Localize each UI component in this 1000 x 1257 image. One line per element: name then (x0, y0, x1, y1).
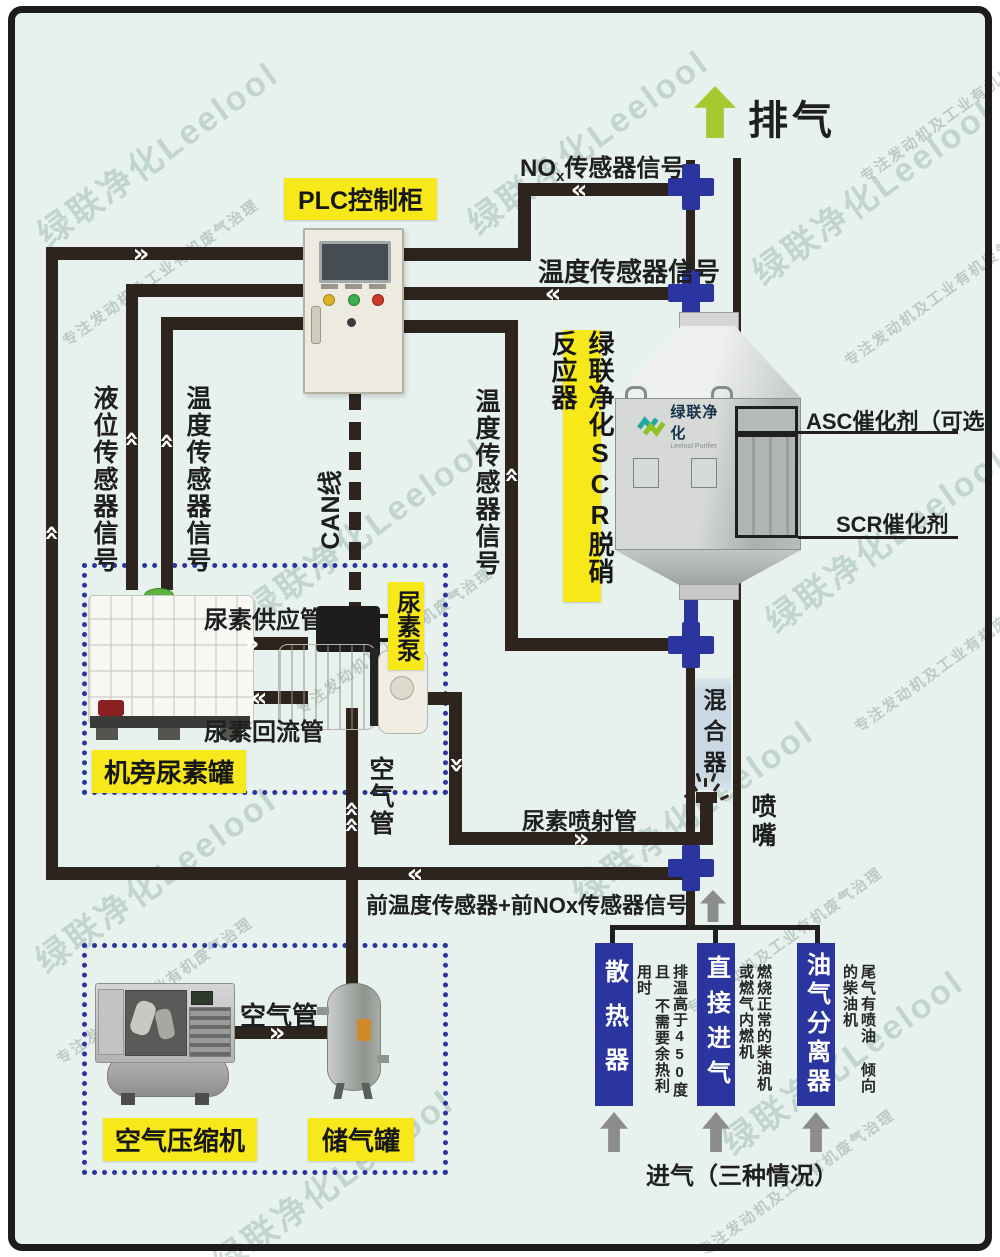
reactor-label: 绿联净化SCR脱硝反应器 (563, 330, 601, 602)
air-tank-label-patch (357, 1019, 371, 1041)
urea-inject-pipe (700, 800, 713, 845)
compressor-foot (195, 1093, 209, 1105)
air-tank-label: 储气罐 (308, 1118, 414, 1161)
mid-temp-signal-line (400, 320, 512, 333)
air-tank-inlet (317, 1007, 329, 1015)
intake-note: 燃烧正常的柴油机 或燃气内燃机 (736, 964, 772, 1108)
air-compressor-label: 空气压缩机 (103, 1118, 257, 1161)
intake-note: 尾气有喷油 倾向的柴油机 (840, 964, 876, 1108)
intake-caption: 进气（三种情况） (646, 1156, 838, 1191)
urea-tank-label: 机旁尿素罐 (92, 750, 246, 793)
flow-chevron-icon: « (39, 520, 65, 546)
tank-foot (158, 728, 180, 740)
intake-column-label: 油气分离器 (799, 952, 834, 1097)
reactor-logo: 绿联净化 Leelool Purifier (637, 404, 733, 446)
scr-reactor: 绿联净化 Leelool Purifier (615, 300, 801, 600)
compressor-foot (121, 1093, 135, 1105)
intake-header-stub (815, 925, 820, 945)
note-line: 或燃气内燃机 (737, 964, 754, 1060)
diagram-canvas: 绿联净化Leelool 绿联净化Leelool 绿联净化Leelool 绿联净化… (0, 0, 1000, 1257)
air-tank-outlet (377, 1055, 389, 1063)
reactor-access-port (691, 458, 717, 488)
compressor-display (191, 991, 213, 1005)
air-storage-tank (327, 983, 379, 1101)
logo-text-en: Leelool Purifier (670, 443, 733, 450)
nox-text: NO (520, 155, 556, 182)
air-compressor (95, 983, 237, 1105)
pump-port (390, 676, 414, 700)
front-signal-line (46, 867, 686, 880)
exhaust-label: 排气 (748, 88, 836, 146)
compressor-grille (189, 1007, 231, 1057)
front-signal-line (46, 247, 303, 260)
tank-temp-signal-label: 温度传感器信号 (179, 385, 215, 574)
mixer-label: 混合器 (696, 688, 730, 781)
plc-label: PLC控制柜 (284, 178, 437, 220)
air-pipe-vertical (346, 708, 358, 985)
scr-catalyst-label: SCR催化剂 (836, 507, 948, 539)
tank-temp-signal-line (161, 317, 303, 330)
air-tank-body (327, 983, 381, 1091)
intake-column-radiator: 散热器 (595, 943, 633, 1106)
intake-column-direct: 直接进气 (697, 943, 735, 1106)
urea-supply-label: 尿素供应管 (204, 600, 324, 635)
nox-signal-line (524, 183, 686, 196)
leelool-logo-icon (637, 413, 666, 437)
plc-label-strip (369, 284, 386, 289)
air-tank-leg (333, 1083, 344, 1099)
plc-door-handle (311, 306, 321, 344)
intake-note: 排温高于450度且 不需要余热利用时 (634, 964, 688, 1108)
urea-inject-label: 尿素喷射管 (522, 802, 637, 836)
plc-screen (319, 241, 391, 283)
reactor-bottom-flange (679, 584, 739, 600)
can-line-label: CAN线 (311, 465, 347, 555)
temp-signal-label: 温度传感器信号 (538, 252, 720, 289)
mid-temp-signal-label: 温度传感器信号 (468, 388, 504, 577)
reactor-access-port (633, 458, 659, 488)
mid-temp-sensor-fitting (668, 622, 714, 668)
plc-label-strip (345, 284, 362, 289)
front-sensor-fitting (668, 845, 714, 891)
flow-chevron-icon: « (443, 752, 469, 778)
note-line: 燃烧正常的柴油机 (755, 964, 772, 1092)
nox-subscript: x (556, 168, 564, 185)
flow-chevron-icon: « (402, 861, 428, 887)
mid-temp-signal-line (505, 638, 675, 651)
intake-column-label: 直接进气 (699, 955, 734, 1095)
nozzle-label: 喷嘴 (744, 793, 780, 851)
can-line (349, 392, 361, 636)
injection-nozzle (696, 792, 717, 803)
nox-signal-line (400, 248, 524, 261)
level-signal-label: 液位传感器信号 (86, 385, 122, 574)
intake-column-label: 散热器 (597, 959, 632, 1091)
intake-column-separator: 油气分离器 (797, 943, 835, 1106)
flow-chevron-icon: » (128, 241, 154, 267)
urea-return-label: 尿素回流管 (204, 712, 324, 747)
flow-chevron-icon: « (154, 428, 180, 454)
logo-text-cn: 绿联净化 (670, 401, 733, 443)
plc-indicator-green (348, 294, 360, 306)
scr-leader-line (798, 536, 958, 539)
scr-catalyst-section (735, 434, 798, 538)
urea-pump-label: 尿素泵 (388, 582, 424, 670)
air-pipe-label-horizontal: 空气管 (240, 996, 318, 1033)
plc-indicator-yellow (323, 294, 335, 306)
note-line: 不需要余热利用时 (635, 964, 670, 1094)
note-line: 尾气有喷油 (859, 964, 876, 1044)
plc-label-strip (321, 284, 338, 289)
intake-header-stub (713, 925, 718, 945)
front-sensor-label: 前温度传感器+前NOx传感器信号 (366, 888, 688, 920)
compressor-side-panel (98, 989, 124, 1055)
flow-chevron-icon: « (246, 685, 272, 711)
asc-leader-line (798, 431, 958, 434)
nox-signal-label: NOx传感器信号 (520, 148, 684, 183)
tank-foot (96, 728, 118, 740)
front-signal-line (46, 247, 58, 880)
plc-indicator-red (372, 294, 384, 306)
plc-cabinet (303, 228, 404, 394)
asc-catalyst-section (735, 406, 798, 434)
tank-valve (98, 700, 124, 716)
intake-header-stub (610, 925, 615, 945)
air-pipe-label-vertical: 空气管 (362, 756, 398, 837)
plc-knob (347, 318, 356, 327)
nox-suffix: 传感器信号 (564, 155, 684, 182)
spray-mark-icon (704, 778, 707, 787)
flow-chevron-icon: « (119, 426, 145, 452)
level-signal-line (126, 284, 303, 297)
